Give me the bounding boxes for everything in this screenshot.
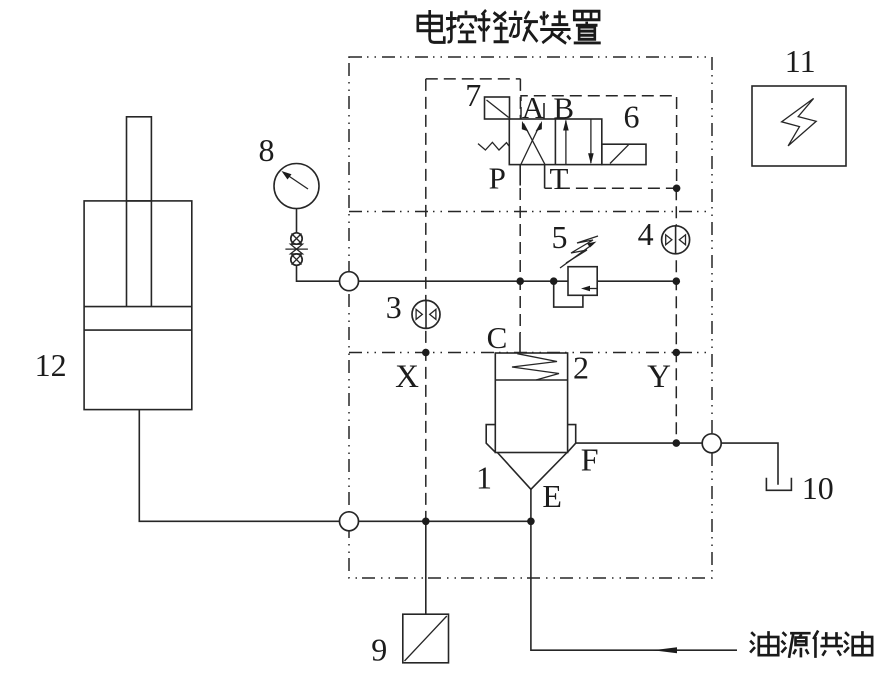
svg-text:1: 1 (476, 460, 492, 496)
svg-text:C: C (487, 320, 508, 355)
svg-text:T: T (550, 161, 569, 196)
svg-text:12: 12 (35, 347, 67, 383)
svg-text:6: 6 (624, 99, 640, 135)
svg-text:P: P (489, 160, 506, 195)
svg-text:9: 9 (371, 632, 387, 668)
svg-text:B: B (553, 91, 574, 126)
svg-text:3: 3 (386, 289, 402, 325)
svg-text:4: 4 (638, 216, 654, 252)
svg-text:10: 10 (802, 470, 834, 506)
svg-text:11: 11 (785, 43, 816, 79)
svg-text:E: E (542, 478, 562, 514)
svg-text:A: A (522, 90, 545, 125)
svg-text:2: 2 (573, 350, 589, 386)
svg-text:5: 5 (552, 219, 568, 255)
svg-text:X: X (395, 359, 419, 395)
svg-text:7: 7 (465, 77, 481, 113)
svg-text:F: F (581, 442, 599, 478)
svg-text:Y: Y (647, 359, 671, 395)
svg-text:8: 8 (259, 132, 275, 168)
